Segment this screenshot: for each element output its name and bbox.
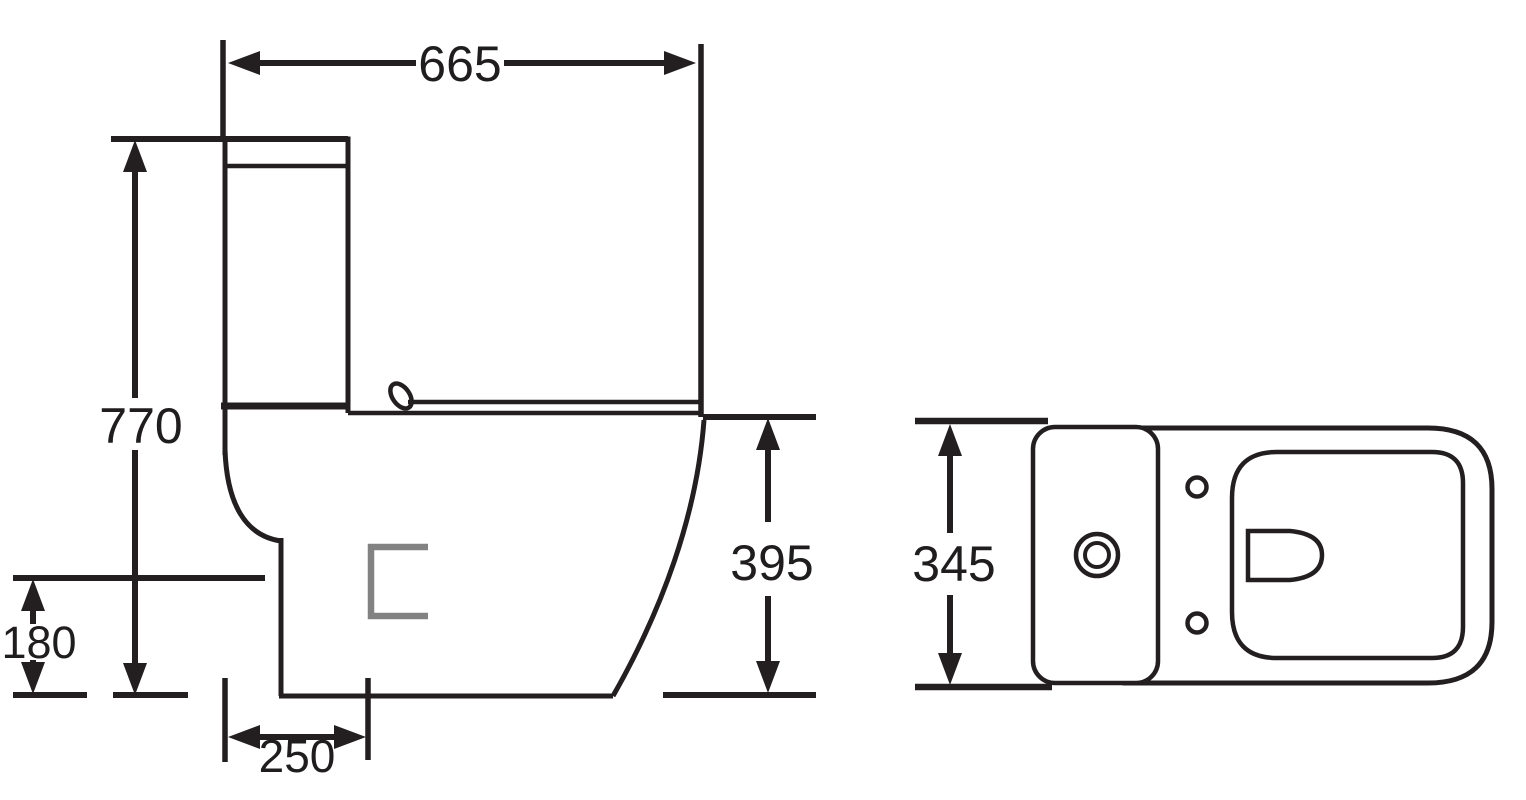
arrowhead-down <box>123 663 147 695</box>
outlet-mark <box>371 547 428 616</box>
drawing-page: 665 770 180 <box>0 0 1526 800</box>
flush-button-outer <box>1076 534 1118 576</box>
dim-outlet-setback-label: 250 <box>259 730 336 782</box>
dim-overall-width-label: 345 <box>912 536 995 592</box>
top-view: 345 <box>912 421 1492 687</box>
arrowhead-down <box>756 661 780 693</box>
arrowhead-right <box>334 725 366 749</box>
side-view: 665 770 180 <box>1 36 816 782</box>
dim-bowl-rim-height-label: 395 <box>730 535 813 591</box>
arrowhead-down <box>938 653 962 685</box>
hinge-hole-bottom <box>1188 614 1207 633</box>
arrowhead-left <box>228 51 260 75</box>
dim-overall-height-label: 770 <box>99 398 182 454</box>
dimension-bowl-rim-height: 395 <box>663 417 816 695</box>
arrowhead-left <box>228 725 260 749</box>
hinge-hole-top <box>1188 478 1207 497</box>
seat-outline <box>1232 452 1463 658</box>
body-outline <box>1125 428 1492 683</box>
arrowhead-up <box>123 140 147 172</box>
toilet-top-outline <box>1033 427 1492 683</box>
dim-outlet-height-label: 180 <box>1 617 76 668</box>
bowl-front-curve <box>613 420 704 696</box>
technical-drawing-canvas: 665 770 180 <box>0 0 1526 800</box>
bowl-back-curve <box>225 450 281 541</box>
dimension-overall-depth: 665 <box>223 36 701 417</box>
arrowhead-up <box>938 424 962 456</box>
bowl-water-outline <box>1248 531 1322 580</box>
arrowhead-up <box>756 418 780 450</box>
dim-overall-depth-label: 665 <box>418 36 501 92</box>
seat-hinge-loop <box>386 380 416 413</box>
arrowhead-right <box>664 51 696 75</box>
toilet-side-outline <box>221 139 704 696</box>
arrowhead-up <box>21 579 45 611</box>
